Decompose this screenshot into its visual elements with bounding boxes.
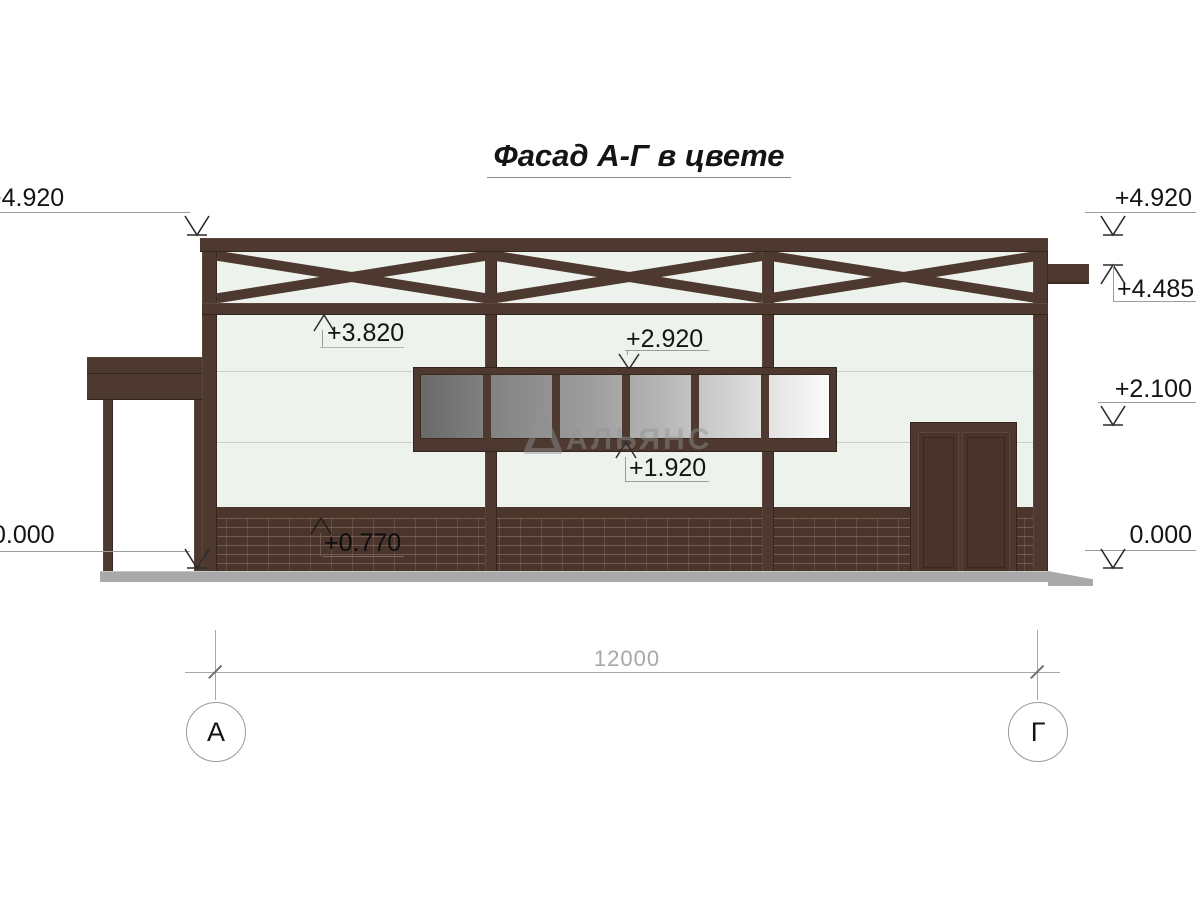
roof-beam bbox=[200, 238, 1048, 252]
leader-line bbox=[0, 212, 190, 213]
elevation-mark-top-left: +4.920 bbox=[0, 186, 64, 211]
leader-line bbox=[1085, 212, 1196, 213]
extension-line bbox=[215, 630, 216, 700]
canopy-fascia bbox=[87, 357, 205, 400]
window-mullion bbox=[761, 375, 769, 440]
entrance-door bbox=[910, 422, 1017, 573]
leader-line bbox=[322, 556, 404, 557]
elevation-mark-eave-right: +4.485 bbox=[1117, 277, 1194, 302]
watermark-logo-icon bbox=[524, 410, 562, 454]
elevation-mark-window-head: +2.920 bbox=[626, 327, 703, 352]
leader-line bbox=[320, 533, 321, 556]
leader-line bbox=[320, 347, 404, 348]
elevation-arrow-down-icon bbox=[1096, 548, 1130, 571]
canopy-post bbox=[103, 400, 113, 573]
watermark-text: АЛЬЯНС bbox=[566, 425, 712, 455]
axis-label: А bbox=[207, 717, 225, 748]
column-left bbox=[202, 240, 217, 573]
column-right bbox=[1033, 240, 1048, 573]
leader-line bbox=[1113, 265, 1114, 302]
elevation-arrow-down-icon bbox=[1096, 215, 1130, 238]
door-leaf-wide bbox=[962, 432, 1010, 573]
door-leaf-narrow bbox=[918, 432, 959, 573]
leader-line bbox=[1098, 402, 1196, 403]
window-mullion bbox=[483, 375, 491, 440]
door-panel bbox=[967, 437, 1005, 568]
leader-line bbox=[0, 551, 190, 552]
elevation-mark-top-right: +4.920 bbox=[1110, 186, 1192, 211]
leader-line bbox=[322, 330, 323, 348]
extension-line bbox=[1037, 630, 1038, 700]
facade-drawing: Фасад А-Г в цвете bbox=[0, 0, 1200, 900]
elevation-mark-zero-right: 0.000 bbox=[1126, 523, 1192, 548]
canopy-fascia-seam bbox=[87, 373, 205, 374]
ground-ramp bbox=[1048, 571, 1093, 586]
axis-label: Г bbox=[1031, 717, 1046, 748]
dimension-value: 12000 bbox=[594, 646, 660, 672]
elevation-mark-plinth-top: +0.770 bbox=[324, 531, 401, 556]
door-panel bbox=[923, 437, 954, 568]
elevation-mark-mid-right: +2.100 bbox=[1110, 377, 1192, 402]
axis-bubble-g: Г bbox=[1008, 702, 1068, 762]
elevation-arrow-down-icon bbox=[180, 215, 214, 238]
ground-slab bbox=[100, 571, 1048, 582]
leader-line bbox=[1113, 301, 1196, 302]
leader-line bbox=[625, 457, 626, 482]
page-title: Фасад А-Г в цвете bbox=[493, 140, 784, 171]
gutter-outlet bbox=[1048, 264, 1089, 284]
elevation-mark-zero-left: 0.000 bbox=[0, 523, 55, 548]
elevation-arrow-down-icon bbox=[1096, 405, 1130, 428]
elevation-arrow-down-icon bbox=[616, 353, 642, 370]
elevation-arrow-down-icon bbox=[180, 548, 214, 571]
leader-line bbox=[625, 481, 709, 482]
elevation-mark-window-sill: +1.920 bbox=[629, 456, 706, 481]
title-underline bbox=[487, 177, 791, 178]
leader-line bbox=[625, 350, 709, 351]
elevation-mark-truss-bottom: +3.820 bbox=[327, 321, 404, 346]
axis-bubble-a: А bbox=[186, 702, 246, 762]
dimension-line bbox=[185, 672, 1060, 673]
